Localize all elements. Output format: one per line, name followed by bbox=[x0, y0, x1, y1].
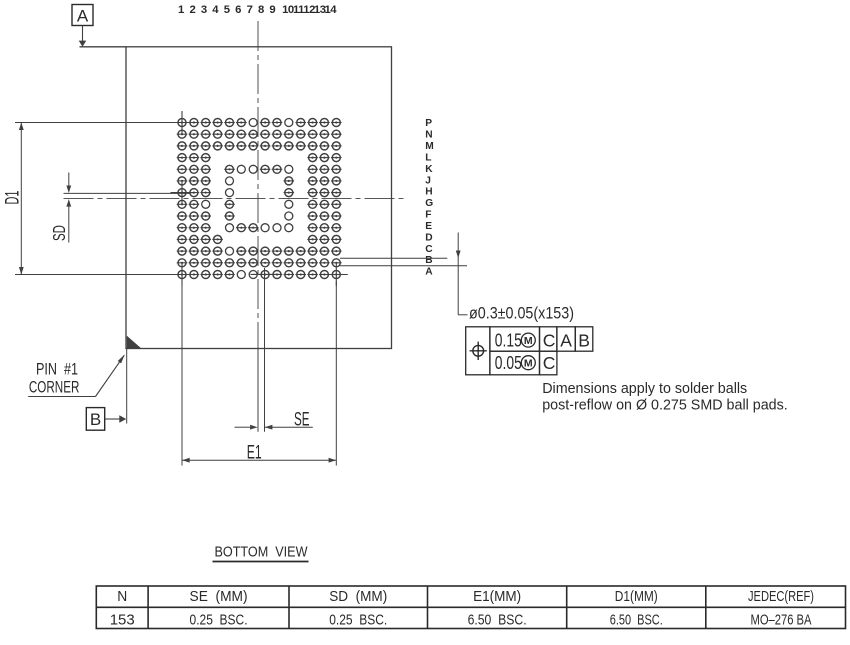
svg-text:M: M bbox=[524, 358, 533, 370]
svg-text:H: H bbox=[425, 187, 432, 198]
svg-text:14: 14 bbox=[325, 4, 338, 16]
svg-text:MO–276 BA: MO–276 BA bbox=[751, 611, 812, 628]
svg-text:7: 7 bbox=[247, 4, 253, 16]
svg-text:A: A bbox=[560, 330, 572, 350]
svg-text:C: C bbox=[425, 244, 433, 255]
svg-text:0.25 BSC.: 0.25 BSC. bbox=[190, 611, 248, 628]
svg-text:J: J bbox=[425, 175, 431, 186]
svg-text:1: 1 bbox=[178, 4, 184, 16]
svg-text:6.50 BSC.: 6.50 BSC. bbox=[610, 611, 663, 628]
svg-text:C: C bbox=[543, 330, 556, 350]
svg-text:2: 2 bbox=[189, 4, 195, 16]
svg-text:CORNER: CORNER bbox=[29, 378, 80, 397]
svg-text:SD (MM): SD (MM) bbox=[329, 588, 387, 605]
svg-text:F: F bbox=[425, 210, 431, 221]
svg-text:N: N bbox=[425, 130, 432, 141]
svg-text:SD: SD bbox=[49, 225, 69, 241]
svg-text:PIN #1: PIN #1 bbox=[36, 360, 78, 379]
svg-text:D1: D1 bbox=[3, 191, 24, 205]
svg-text:B: B bbox=[578, 330, 590, 350]
svg-text:Dimensions apply to solder bal: Dimensions apply to solder balls bbox=[542, 381, 747, 397]
svg-text:8: 8 bbox=[258, 4, 264, 16]
svg-text:0.05: 0.05 bbox=[495, 352, 522, 373]
svg-text:BOTTOM VIEW: BOTTOM VIEW bbox=[215, 543, 309, 560]
svg-text:E1(MM): E1(MM) bbox=[473, 588, 521, 605]
svg-text:E: E bbox=[425, 221, 432, 232]
svg-text:B: B bbox=[425, 255, 432, 266]
svg-text:6.50 BSC.: 6.50 BSC. bbox=[468, 611, 527, 628]
svg-text:D1(MM): D1(MM) bbox=[615, 588, 658, 605]
svg-text:6: 6 bbox=[235, 4, 241, 16]
svg-text:5: 5 bbox=[224, 4, 230, 16]
svg-text:post-reflow on Ø 0.275 SMD bal: post-reflow on Ø 0.275 SMD ball pads. bbox=[542, 398, 788, 414]
svg-text:M: M bbox=[425, 141, 434, 152]
svg-text:P: P bbox=[425, 118, 432, 129]
svg-text:E1: E1 bbox=[247, 442, 262, 463]
svg-text:9: 9 bbox=[269, 4, 275, 16]
svg-text:3: 3 bbox=[201, 4, 207, 16]
svg-text:4: 4 bbox=[212, 4, 219, 16]
svg-text:153: 153 bbox=[110, 611, 135, 628]
svg-text:L: L bbox=[425, 152, 431, 163]
svg-text:0.25 BSC.: 0.25 BSC. bbox=[329, 611, 387, 628]
svg-text:ø0.3±0.05(x153): ø0.3±0.05(x153) bbox=[469, 303, 574, 322]
svg-text:N: N bbox=[117, 588, 127, 605]
svg-text:JEDEC(REF): JEDEC(REF) bbox=[748, 588, 814, 605]
svg-text:M: M bbox=[524, 335, 533, 347]
svg-text:C: C bbox=[543, 353, 556, 373]
svg-text:0.15: 0.15 bbox=[495, 329, 522, 350]
svg-text:D: D bbox=[425, 232, 432, 243]
svg-text:K: K bbox=[425, 164, 433, 175]
svg-text:A: A bbox=[77, 7, 89, 26]
svg-text:SE: SE bbox=[294, 409, 310, 430]
svg-text:G: G bbox=[425, 198, 433, 209]
svg-text:B: B bbox=[90, 410, 101, 429]
svg-text:A: A bbox=[425, 267, 433, 278]
svg-text:SE (MM): SE (MM) bbox=[190, 588, 248, 605]
